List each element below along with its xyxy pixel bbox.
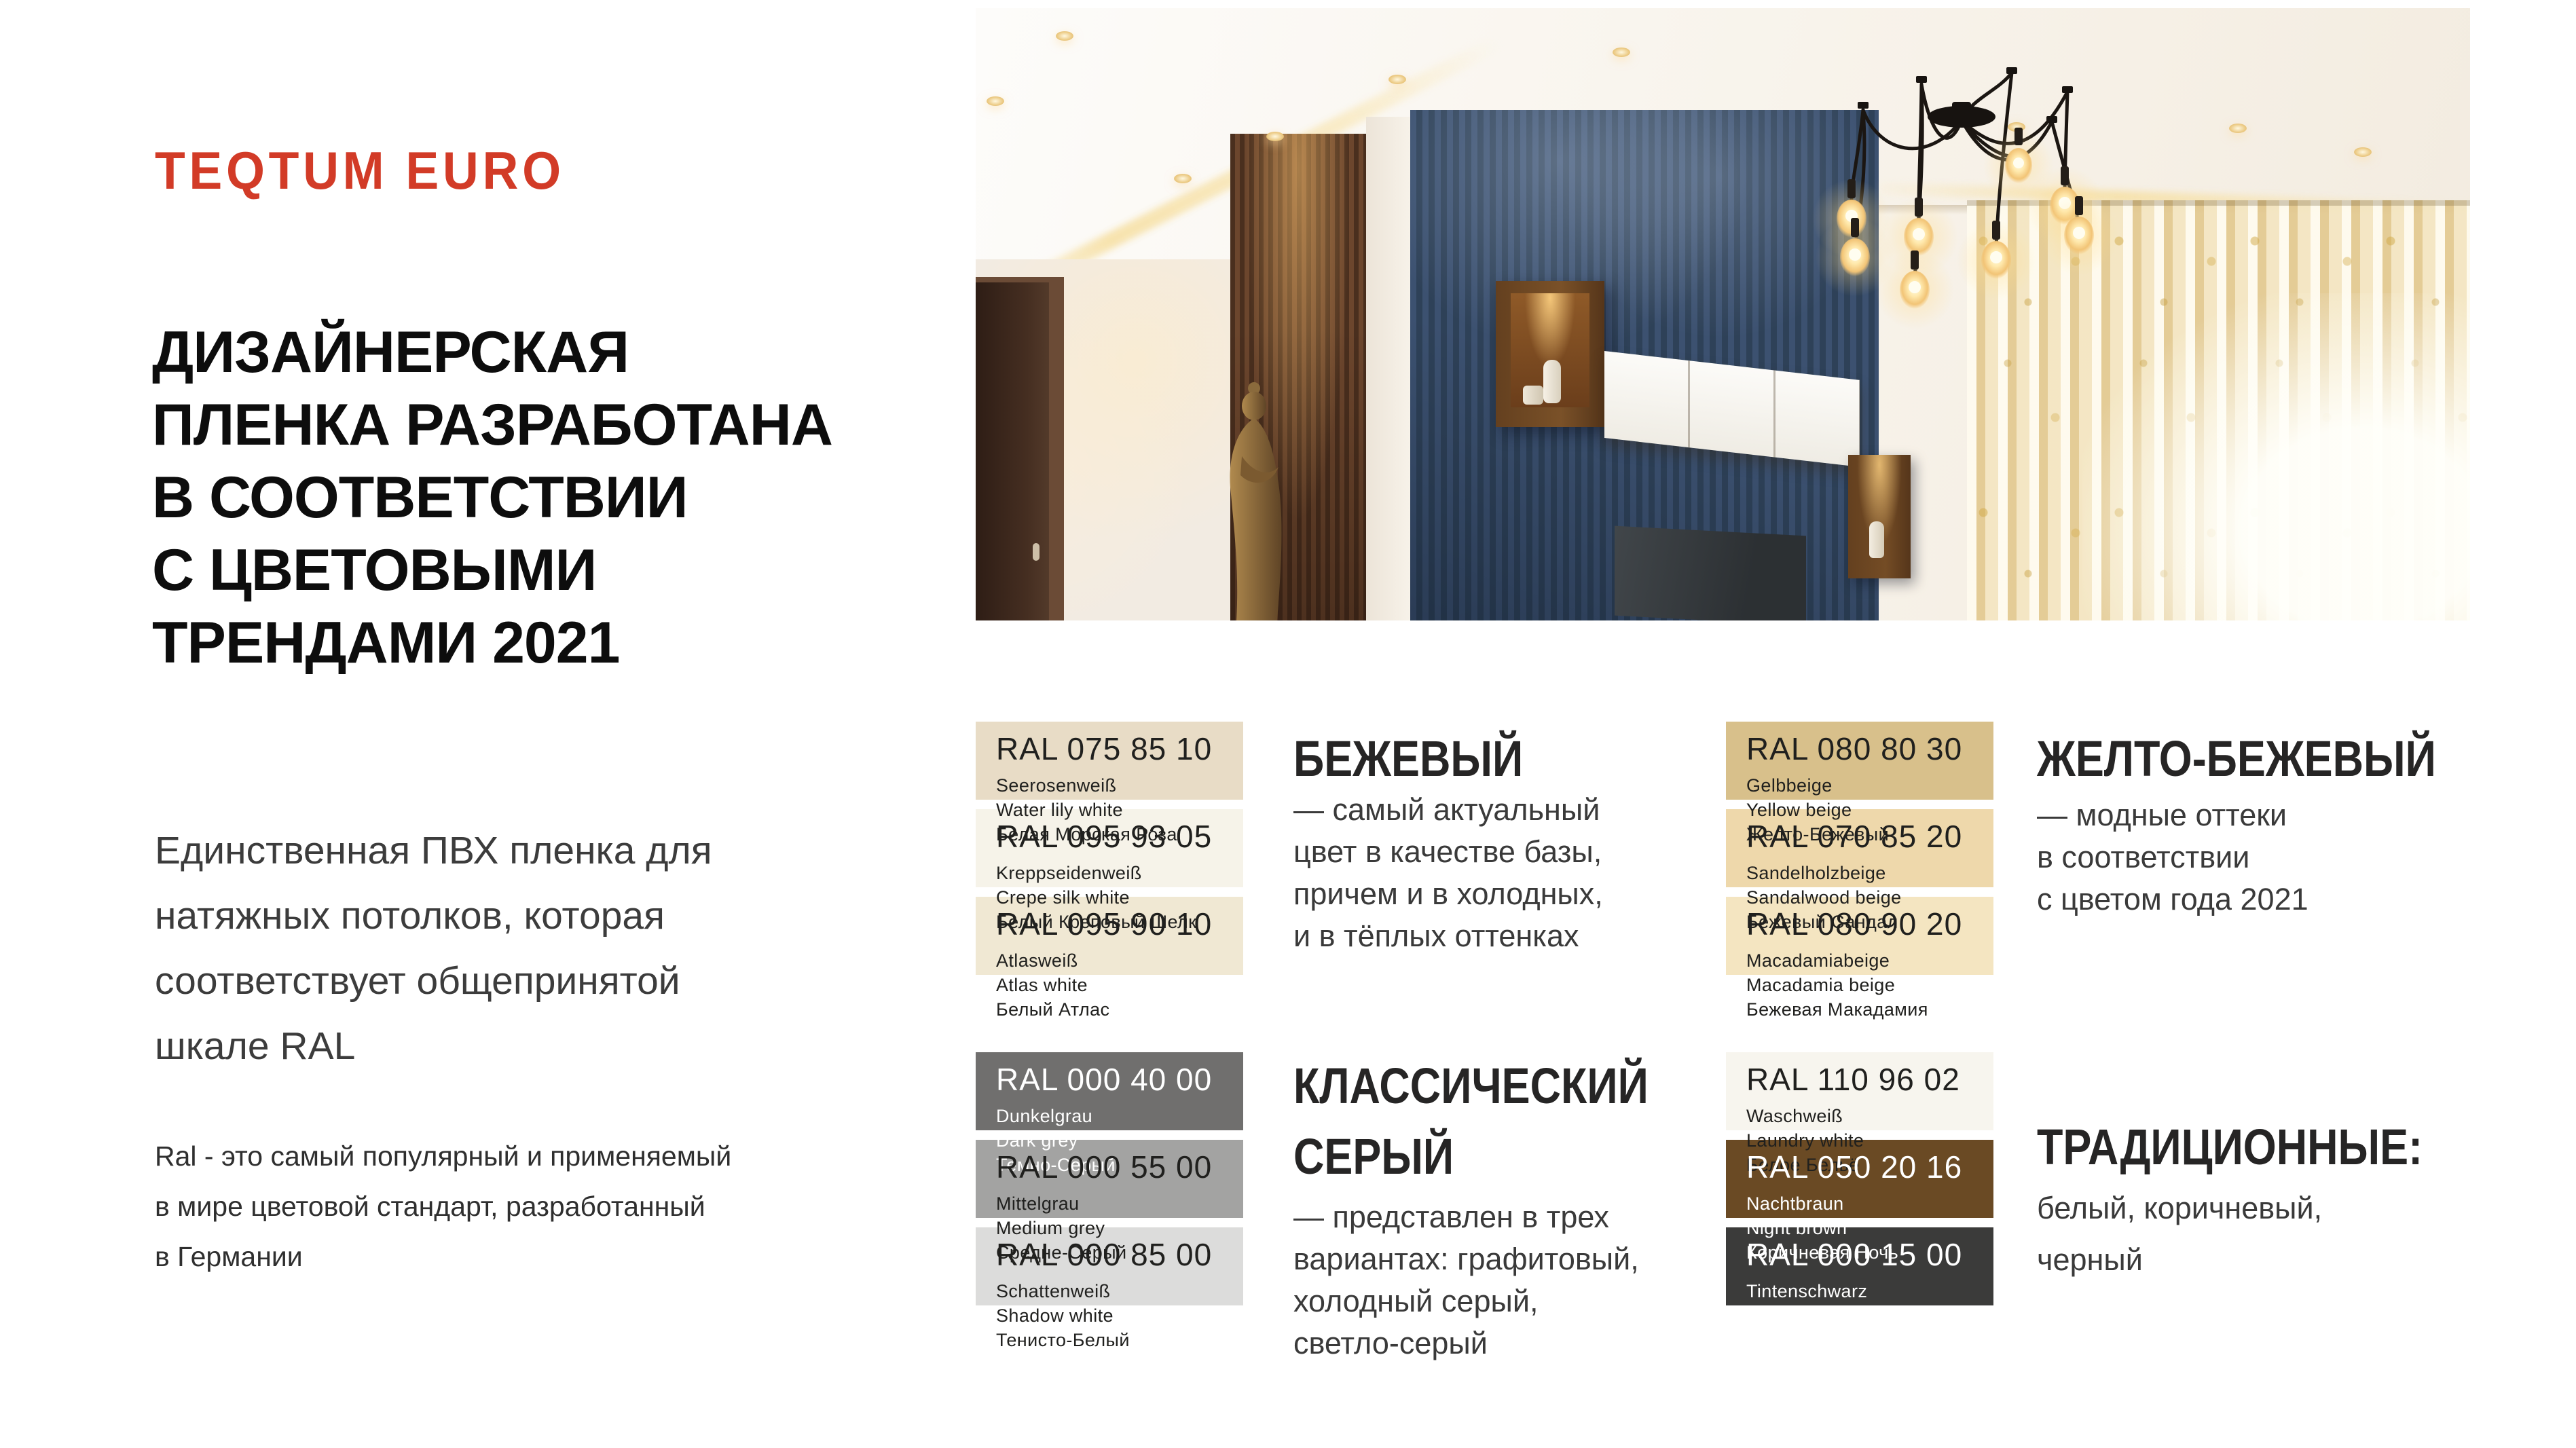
ral-code: RAL 000 55 00 [996, 1149, 1236, 1185]
ral-code: RAL 110 96 02 [1746, 1061, 1987, 1098]
section-heading-traditional: ТРАДИЦИОННЫЕ: [2037, 1112, 2423, 1183]
ral-swatch: RAL 095 90 10 Atlasweiß Atlas white Белы… [976, 897, 1243, 975]
section-heading-classic-grey: КЛАССИЧЕСКИЙ СЕРЫЙ [1293, 1051, 1649, 1192]
page-title-line: ТРЕНДАМИ 2021 [152, 607, 832, 680]
ral-name-de: Mittelgrau [996, 1191, 1236, 1216]
chandelier-canopy [1928, 102, 1995, 128]
ral-swatch: RAL 000 85 00 Schattenweiß Shadow white … [976, 1227, 1243, 1305]
ral-name-de: Sandelholzbeige [1746, 861, 1987, 885]
ral-swatch: RAL 050 20 16 Nachtbraun Night brown Кор… [1726, 1140, 1993, 1218]
ral-swatch: RAL 080 90 20 Macadamiabeige Macadamia b… [1726, 897, 1993, 975]
ral-swatch: RAL 000 55 00 Mittelgrau Medium grey Сре… [976, 1140, 1243, 1218]
ral-name-ru: Белый Атлас [996, 997, 1236, 1022]
ral-name-en: Shadow white [996, 1303, 1236, 1328]
ral-name-de: Waschweiß [1746, 1104, 1987, 1128]
statue-illustration [1230, 382, 1281, 620]
swatch-group-classic-grey: RAL 000 40 00 Dunkelgrau Dark grey Темно… [976, 1052, 1243, 1315]
ral-name-de: Macadamiabeige [1746, 948, 1987, 973]
page-title-line: ПЛЕНКА РАЗРАБОТАНА [152, 389, 832, 462]
section-description-traditional: белый, коричневый, черный [2037, 1183, 2471, 1286]
ral-code: RAL 000 85 00 [996, 1236, 1236, 1273]
page-title-line: ДИЗАЙНЕРСКАЯ [152, 316, 832, 389]
ral-code: RAL 080 80 30 [1746, 730, 1987, 767]
swatch-group-traditional: RAL 110 96 02 Waschweiß Laundry white Бе… [1726, 1052, 1993, 1315]
ral-code: RAL 000 40 00 [996, 1061, 1236, 1098]
ral-name-ru: Тенисто-Белый [996, 1328, 1236, 1352]
ral-code: RAL 075 85 10 [996, 730, 1236, 767]
ral-name-ru: Чернильно-Черный [1746, 1328, 1987, 1352]
ral-code: RAL 000 15 00 [1746, 1236, 1987, 1273]
ral-name-de: Kreppseidenweiß [996, 861, 1236, 885]
ral-names: Tintenschwarz Ink black Чернильно-Черный [1746, 1279, 1987, 1352]
interior-photo [976, 8, 2470, 620]
ral-swatch: RAL 110 96 02 Waschweiß Laundry white Бе… [1726, 1052, 1993, 1130]
ral-name-en: Macadamia beige [1746, 973, 1987, 997]
ral-name-en: Ink black [1746, 1303, 1987, 1328]
section-description-beige: — самый актуальный цвет в качестве базы,… [1293, 789, 1646, 957]
section-description-yellow-beige: — модные оттеки в соответствии с цветом … [2037, 794, 2471, 921]
section-heading-yellow-beige: ЖЕЛТО-БЕЖЕВЫЙ [2037, 724, 2436, 794]
chandelier-illustration [976, 8, 2470, 620]
ral-swatch: RAL 075 85 10 Seerosenweiß Water lily wh… [976, 722, 1243, 800]
ral-swatch: RAL 095 93 05 Kreppseidenweiß Crepe silk… [976, 809, 1243, 887]
ral-code: RAL 050 20 16 [1746, 1149, 1987, 1185]
ral-name-de: Gelbbeige [1746, 773, 1987, 798]
swatch-group-beige: RAL 075 85 10 Seerosenweiß Water lily wh… [976, 722, 1243, 984]
ral-names: Schattenweiß Shadow white Тенисто-Белый [996, 1279, 1236, 1352]
ral-name-de: Atlasweiß [996, 948, 1236, 973]
ral-swatch: RAL 080 80 30 Gelbbeige Yellow beige Жел… [1726, 722, 1993, 800]
ral-name-ru: Бежевая Макадамия [1746, 997, 1987, 1022]
ral-name-de: Nachtbraun [1746, 1191, 1987, 1216]
section-description-classic-grey: — представлен в трех вариантах: графитов… [1293, 1196, 1674, 1365]
ral-code: RAL 080 90 20 [1746, 906, 1987, 942]
brand-logo: TEQTUM EURO [155, 140, 565, 202]
ral-swatch: RAL 000 15 00 Tintenschwarz Ink black Че… [1726, 1227, 1993, 1305]
ral-swatch: RAL 070 85 20 Sandelholzbeige Sandalwood… [1726, 809, 1993, 887]
page-title-line: В СООТВЕТСТВИИ [152, 462, 832, 534]
ral-name-de: Dunkelgrau [996, 1104, 1236, 1128]
ral-names: Macadamiabeige Macadamia beige Бежевая М… [1746, 948, 1987, 1022]
ral-name-de: Schattenweiß [996, 1279, 1236, 1303]
ral-names: Atlasweiß Atlas white Белый Атлас [996, 948, 1236, 1022]
ral-code: RAL 095 90 10 [996, 906, 1236, 942]
swatch-group-yellow-beige: RAL 080 80 30 Gelbbeige Yellow beige Жел… [1726, 722, 1993, 984]
ral-swatch: RAL 000 40 00 Dunkelgrau Dark grey Темно… [976, 1052, 1243, 1130]
ral-name-de: Tintenschwarz [1746, 1279, 1987, 1303]
ral-note-paragraph: Ral - это самый популярный и применяемый… [155, 1131, 942, 1282]
page-title: ДИЗАЙНЕРСКАЯ ПЛЕНКА РАЗРАБОТАНА В СООТВЕ… [152, 316, 832, 680]
ral-name-de: Seerosenweiß [996, 773, 1236, 798]
ral-code: RAL 095 93 05 [996, 818, 1236, 855]
page-title-line: С ЦВЕТОВЫМИ [152, 534, 832, 607]
ral-code: RAL 070 85 20 [1746, 818, 1987, 855]
ral-name-en: Atlas white [996, 973, 1236, 997]
section-heading-beige: БЕЖЕВЫЙ [1293, 724, 1523, 794]
intro-paragraph: Единственная ПВХ пленка для натяжных пот… [155, 818, 942, 1079]
